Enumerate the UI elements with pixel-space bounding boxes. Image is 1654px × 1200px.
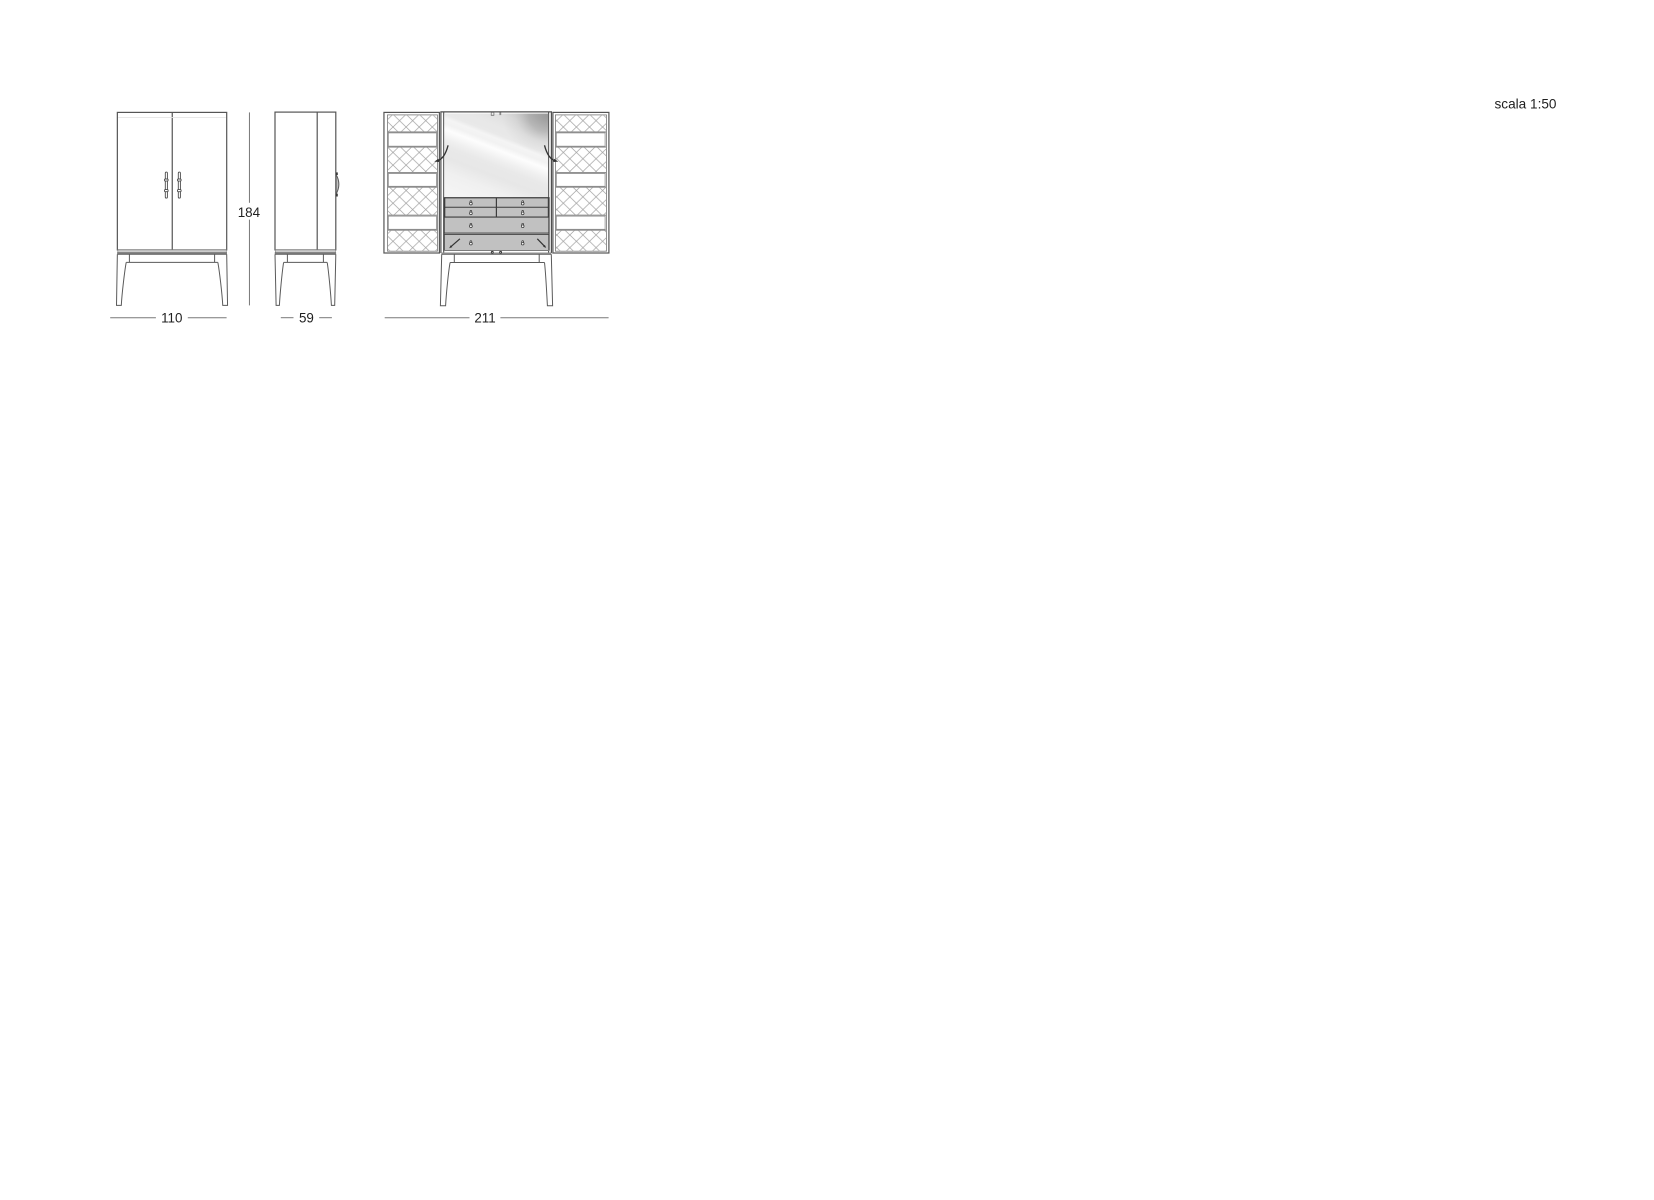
svg-text:211: 211 <box>474 311 495 326</box>
svg-text:scala 1:50: scala 1:50 <box>1495 97 1557 112</box>
svg-text:184: 184 <box>238 205 261 220</box>
svg-text:59: 59 <box>299 311 314 326</box>
svg-text:110: 110 <box>161 311 182 326</box>
